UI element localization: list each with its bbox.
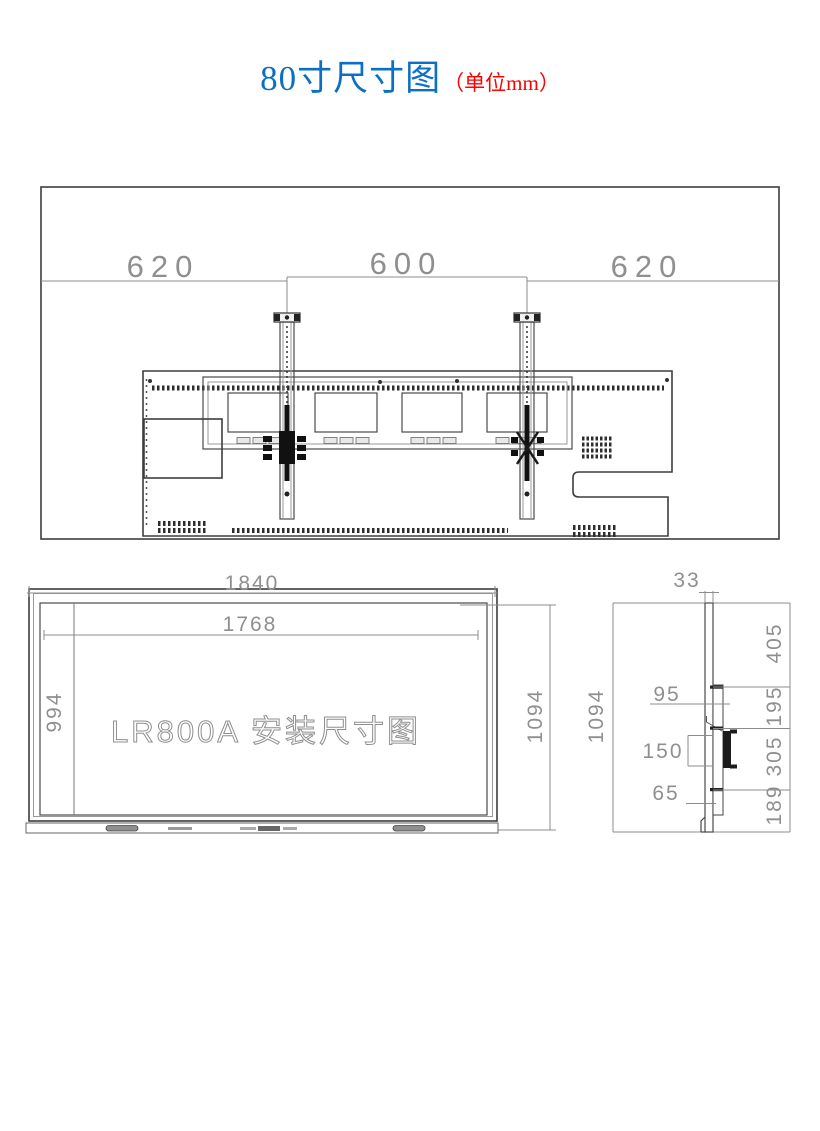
dim-right-wall-offset: 620	[611, 249, 684, 284]
dim-hook-inset: 95	[653, 683, 680, 706]
dim-screen-height: 994	[43, 691, 66, 732]
dim-rail-spacing: 600	[370, 246, 443, 281]
dim-seg-top: 405	[763, 622, 786, 663]
dim-overall-height-side: 1094	[585, 689, 608, 744]
dim-panel-thickness: 33	[673, 569, 700, 592]
dim-overall-height-front: 1094	[524, 689, 547, 744]
side-view: 33 95 150 65 405 195 305	[585, 569, 790, 832]
dim-overall-width: 1840	[225, 572, 280, 595]
panel-screws	[148, 378, 669, 384]
dim-bottom-inset: 65	[652, 782, 679, 805]
bottom-left-vent-block	[158, 524, 206, 531]
dimension-drawing: 620 600 620	[0, 0, 820, 1131]
front-button-row	[168, 827, 192, 830]
drawing-page: 80寸尺寸图 （单位mm） 620 600 620	[0, 0, 820, 1131]
dim-left-wall-offset: 620	[127, 249, 200, 284]
display-back-panel	[143, 371, 672, 536]
model-label: LR800A 安装尺寸图	[111, 714, 421, 749]
front-logo	[258, 826, 280, 831]
dim-seg-upper: 195	[763, 685, 786, 726]
front-dimension-lines	[27, 586, 556, 830]
rail-profile	[723, 731, 731, 768]
front-port-left	[240, 827, 256, 830]
dim-seg-middle: 305	[763, 735, 786, 776]
mount-window-1	[228, 393, 288, 432]
mount-window-3	[402, 393, 462, 432]
front-view: 1840 1768 994 1094 LR800A 安装尺寸图	[26, 572, 556, 833]
dim-hook-spacing: 150	[642, 740, 683, 763]
speaker-right	[393, 826, 425, 832]
bottom-right-vent-block	[573, 528, 618, 535]
mount-rail-right	[511, 313, 544, 519]
bottom-tray	[26, 823, 498, 833]
top-view-wall-mount: 620 600 620	[41, 187, 779, 539]
dim-seg-bottom: 189	[763, 784, 786, 825]
speaker-left	[106, 826, 138, 832]
thickness-dim-marks	[699, 591, 719, 603]
rail-clamp-left	[263, 431, 306, 464]
rail-hook-head-right	[514, 313, 540, 322]
rail-hook-top	[730, 730, 737, 734]
right-vent-grid	[582, 439, 612, 457]
mount-window-4	[487, 393, 547, 432]
dim-screen-width: 1768	[223, 613, 278, 636]
wall-outline	[41, 187, 779, 539]
rail-hook-head-left	[274, 313, 300, 322]
rail-hook-bottom	[730, 765, 737, 769]
front-port-right	[283, 827, 297, 830]
mount-rail-left	[263, 313, 306, 519]
mount-window-2	[315, 393, 377, 432]
